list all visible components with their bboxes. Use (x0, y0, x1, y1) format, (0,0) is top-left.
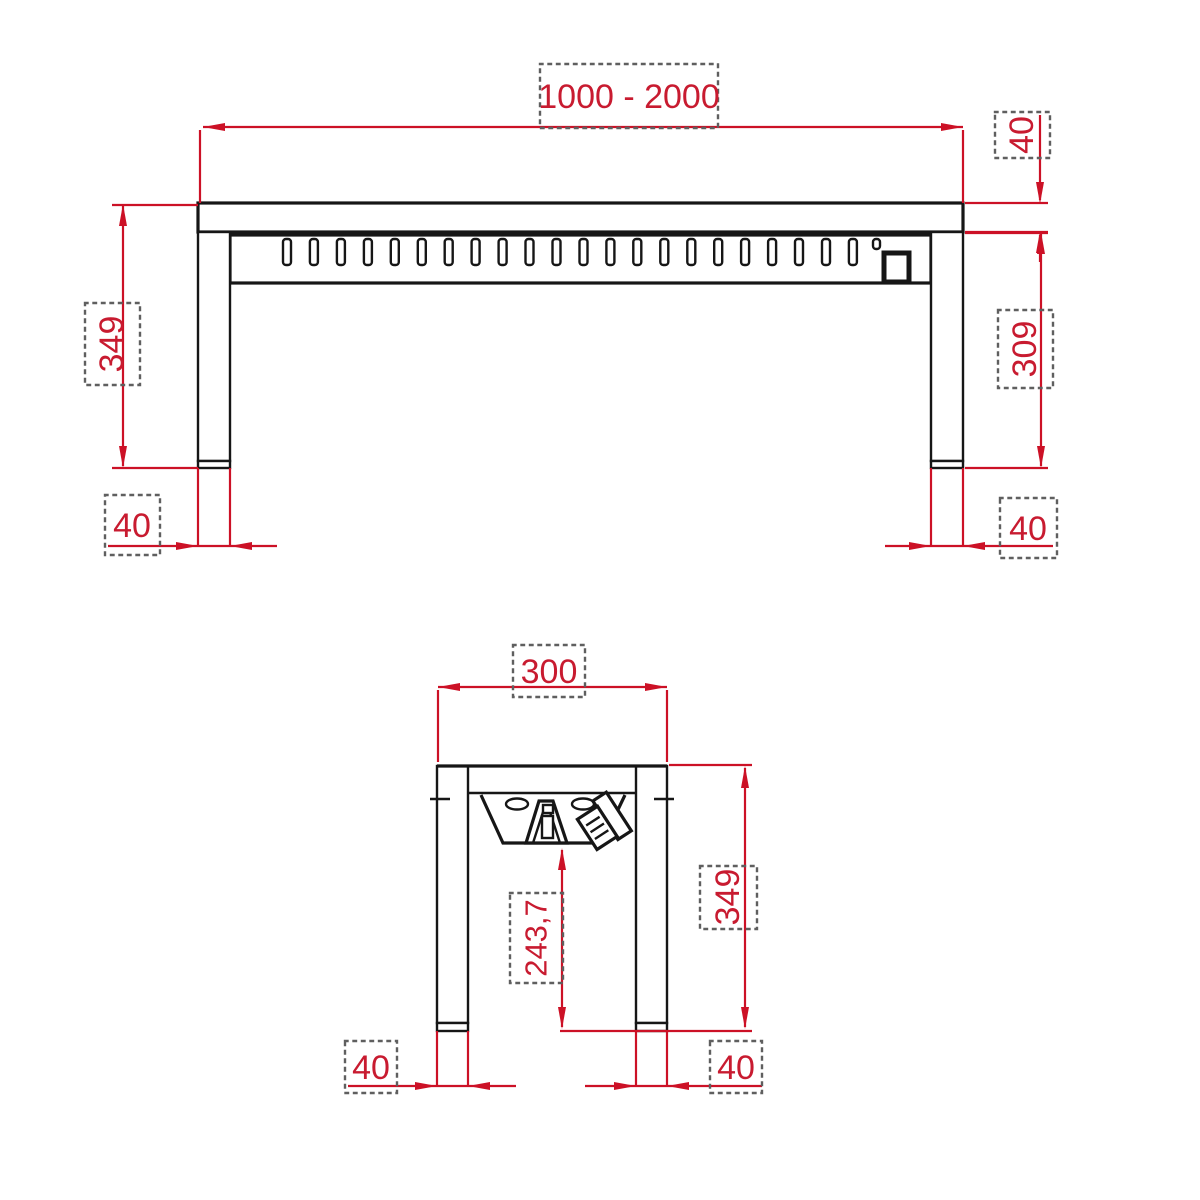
arrow-right-icon (909, 542, 931, 550)
vent-slot (337, 239, 345, 265)
vent-slot (499, 239, 507, 265)
dim-front-left-leg-width: 40 (105, 468, 277, 555)
technical-drawing: 1000 - 2000 40 349 309 (0, 0, 1200, 1200)
dim-front-clearance-value: 309 (1006, 321, 1044, 378)
dim-front-left-leg-width-value: 40 (113, 507, 151, 545)
vent-slot (660, 239, 668, 265)
front-left-leg (198, 232, 230, 461)
vent-slot (445, 239, 453, 265)
dim-front-top-thickness-value: 40 (1003, 116, 1041, 154)
vent-slot (472, 239, 480, 265)
vent-slot (606, 239, 614, 265)
arrow-left-icon (963, 542, 985, 550)
arrow-down-icon (558, 1007, 566, 1029)
arrow-right-icon (645, 683, 667, 691)
front-left-foot (198, 461, 230, 468)
dim-side-depth-value: 300 (521, 653, 578, 691)
dim-front-total-height-value: 349 (93, 316, 131, 373)
vent-slot (526, 239, 534, 265)
side-left-foot (437, 1023, 468, 1031)
vent-slot (553, 239, 561, 265)
ir-lamp-socket (543, 805, 553, 813)
dim-side-right-leg-width: 40 (585, 1031, 762, 1093)
dim-front-right-leg-width-value: 40 (1009, 510, 1047, 548)
front-right-leg (931, 232, 963, 461)
arrow-down-icon (119, 446, 127, 468)
dim-front-clearance: 309 (965, 232, 1053, 468)
vent-slot (633, 239, 641, 265)
front-view: 1000 - 2000 40 349 309 (85, 64, 1057, 558)
ir-lamp (542, 816, 553, 838)
side-right-foot (636, 1023, 667, 1031)
arrow-down-icon (741, 1007, 749, 1029)
arrow-left-icon (203, 123, 225, 131)
front-tabletop (198, 203, 963, 232)
vent-slot (768, 239, 776, 265)
dim-side-heater-clearance-value: 243,7 (519, 899, 554, 977)
arrow-right-icon (614, 1082, 636, 1090)
arrow-up-icon (558, 848, 566, 870)
vent-slot (580, 239, 588, 265)
vent-slot (741, 239, 749, 265)
vent-slot (687, 239, 695, 265)
technical-drawing-page: 1000 - 2000 40 349 309 (0, 0, 1200, 1200)
dim-side-right-leg-width-value: 40 (717, 1049, 755, 1087)
arrow-up-icon (741, 766, 749, 788)
vent-slot (849, 239, 857, 265)
vent-slot (795, 239, 803, 265)
front-right-foot (931, 461, 963, 468)
front-view-outline (198, 203, 963, 468)
dim-side-total-height-value: 349 (709, 869, 747, 926)
arrow-down-icon (1036, 182, 1044, 204)
arrow-left-icon (230, 542, 252, 550)
side-left-leg (437, 766, 468, 1023)
vent-slot (822, 239, 830, 265)
dim-front-width: 1000 - 2000 (200, 64, 963, 203)
vent-slot (310, 239, 318, 265)
arrow-right-icon (941, 123, 963, 131)
dim-side-heater-clearance: 243,7 (510, 848, 566, 1029)
arrow-left-icon (438, 683, 460, 691)
vent-slot (418, 239, 426, 265)
arrow-right-icon (415, 1082, 437, 1090)
dim-side-depth: 300 (438, 645, 667, 762)
switch-box (884, 253, 909, 282)
arrow-left-icon (667, 1082, 689, 1090)
dim-front-width-value: 1000 - 2000 (538, 78, 720, 116)
dim-front-right-leg-width: 40 (885, 468, 1057, 558)
vent-slot (364, 239, 372, 265)
side-view-outline (430, 766, 674, 1031)
vent-oval-left (506, 799, 528, 810)
vent-slot (714, 239, 722, 265)
vent-oval-right (572, 799, 594, 810)
vent-slot (391, 239, 399, 265)
dim-side-left-leg-width-value: 40 (352, 1049, 390, 1087)
vent-slot (283, 239, 291, 265)
dim-front-total-height: 349 (85, 204, 198, 468)
arrow-up-icon (119, 204, 127, 226)
arrow-down-icon (1037, 446, 1045, 468)
arrow-right-icon (176, 542, 198, 550)
side-view: 300 349 243,7 40 (345, 645, 762, 1093)
dim-side-left-leg-width: 40 (345, 1031, 516, 1093)
side-right-leg (636, 766, 667, 1023)
arrow-left-icon (468, 1082, 490, 1090)
dim-front-top-thickness: 40 (965, 112, 1050, 262)
